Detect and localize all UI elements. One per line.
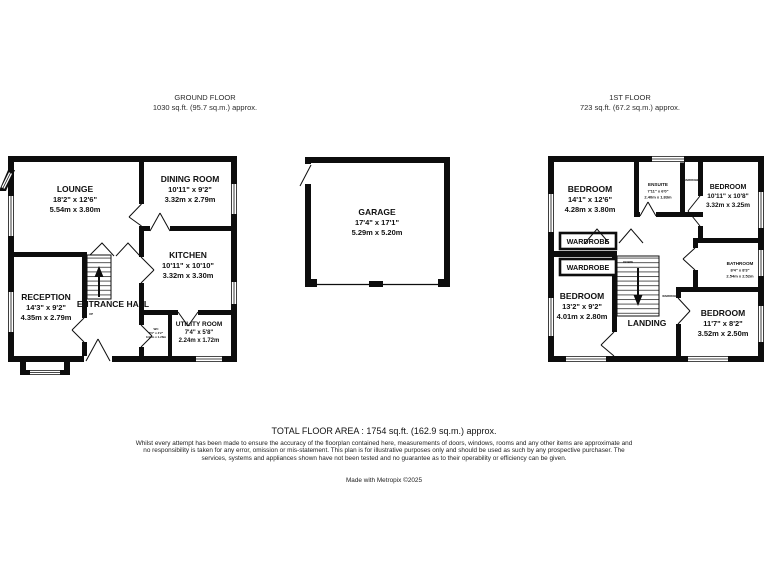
door-lounge-dining	[129, 204, 142, 226]
down-label: DOWN	[623, 260, 633, 264]
first-floor-plan: BEDROOM 14'1" x 12'6" 4.28m x 3.80m ENSU…	[548, 156, 765, 363]
room-dims-metric: 2.40m x 1.83m	[644, 195, 672, 200]
room-dims-metric: 2.24m x 1.72m	[179, 338, 220, 344]
window	[231, 184, 238, 214]
floorplan-page: GROUND FLOOR 1030 sq.ft. (95.7 sq.m.) ap…	[0, 0, 768, 576]
room-name: UTILITY ROOM	[176, 321, 222, 328]
door-ensuite	[640, 202, 656, 217]
utility-room-label: UTILITY ROOM 7'4" x 5'8" 2.24m x 1.72m	[176, 321, 222, 344]
ground-floor-plan: LOUNGE 18'2" x 12'6" 5.54m x 3.80m DININ…	[0, 156, 238, 376]
room-name: GARAGE	[358, 207, 396, 217]
room-name: BEDROOM	[710, 184, 747, 191]
room-dims-metric: 4.01m x 2.80m	[557, 312, 608, 321]
room-dims-metric: 5.29m x 5.20m	[352, 228, 403, 237]
wardrobe1-label: WARDROBE	[567, 237, 610, 246]
kitchen-label: KITCHEN 10'11" x 10'10" 3.32m x 3.30m	[162, 250, 214, 280]
window	[566, 356, 606, 363]
disclaimer-text: Whilst every attempt has been made to en…	[134, 440, 634, 462]
room-dims-metric: 3.52m x 2.50m	[698, 329, 749, 338]
door-hall-reception	[72, 318, 87, 342]
room-dims-metric: 3.32m x 3.30m	[163, 271, 214, 280]
door-hall-kitchen	[139, 257, 154, 283]
reception-label: RECEPTION 14'3" x 9'2" 4.35m x 2.79m	[21, 292, 72, 322]
bedroom3-label: BEDROOM 13'2" x 9'2" 4.01m x 2.80m	[557, 291, 608, 321]
window	[30, 370, 60, 376]
window	[548, 194, 555, 232]
wardrobe2-label: WARDROBE	[567, 263, 610, 272]
window	[231, 282, 238, 304]
room-dims-imperial: 10'11" x 10'10"	[162, 261, 214, 270]
room-dims-imperial: 14'3" x 9'2"	[26, 303, 66, 312]
window	[196, 356, 222, 363]
window	[688, 356, 728, 363]
bedroom1-label: BEDROOM 14'1" x 12'6" 4.28m x 3.80m	[565, 184, 616, 214]
bedroom2-label: BEDROOM 10'11" x 10'8" 3.32m x 3.25m	[706, 184, 750, 209]
wardrobe-top-label: WARDROBE	[683, 178, 699, 182]
window	[758, 192, 765, 228]
room-dims-metric: 4.35m x 2.79m	[21, 313, 72, 322]
door-bedroom4	[678, 298, 690, 324]
staircase-down	[617, 256, 659, 316]
room-dims-metric: 4.28m x 3.80m	[565, 205, 616, 214]
door-bathroom	[683, 248, 695, 270]
staircase-up	[87, 255, 111, 299]
total-floor-area: TOTAL FLOOR AREA : 1754 sq.ft. (162.9 sq…	[0, 426, 768, 436]
room-dims-imperial: 7'11" x 6'0"	[647, 189, 668, 194]
window	[8, 292, 15, 332]
floorplan-canvas: LOUNGE 18'2" x 12'6" 5.54m x 3.80m DININ…	[0, 0, 768, 576]
opening-lounge-hall	[89, 243, 140, 256]
up-label: UP	[89, 312, 93, 316]
room-name: BEDROOM	[701, 308, 745, 318]
window	[758, 250, 765, 276]
room-name: RECEPTION	[21, 292, 71, 302]
room-dims-metric: 3.32m x 3.25m	[706, 202, 750, 209]
room-dims-metric: 3.32m x 2.79m	[165, 195, 216, 204]
ensuite-label: ENSUITE 7'11" x 6'0" 2.40m x 1.83m	[644, 182, 672, 200]
room-dims-imperial: 17'4" x 17'1"	[355, 218, 399, 227]
room-dims-imperial: 10'11" x 10'8"	[707, 193, 748, 200]
wardrobe-side-label: WARDROBE	[662, 294, 678, 298]
room-name: BEDROOM	[560, 291, 604, 301]
window	[8, 196, 15, 236]
room-dims-imperial: 13'2" x 9'2"	[562, 302, 602, 311]
room-dims-imperial: 11'7" x 8'2"	[703, 319, 743, 328]
door-bedroom3	[601, 332, 614, 356]
room-dims-metric: 2.54m x 2.52m	[726, 274, 754, 279]
bathroom-label: BATHROOM 8'4" x 8'3" 2.54m x 2.52m	[726, 261, 754, 279]
garage-label: GARAGE 17'4" x 17'1" 5.29m x 5.20m	[352, 207, 403, 237]
window	[652, 156, 684, 163]
room-dims-imperial: 10'11" x 9'2"	[168, 185, 212, 194]
room-name: DINING ROOM	[161, 174, 220, 184]
wc-label: WC 3'0" x 4'2" 0.91m x 1.28m	[146, 327, 167, 339]
window	[758, 306, 765, 342]
room-dims-imperial: 18'2" x 12'6"	[53, 195, 97, 204]
room-name: ENTRANCE HALL	[77, 299, 149, 309]
dining-room-label: DINING ROOM 10'11" x 9'2" 3.32m x 2.79m	[161, 174, 220, 204]
room-dims-imperial: 7'4" x 5'8"	[185, 330, 214, 336]
room-name: LOUNGE	[57, 184, 94, 194]
door-bedroom2	[688, 196, 700, 226]
garage-plan: GARAGE 17'4" x 17'1" 5.29m x 5.20m	[300, 157, 450, 287]
door-dining-kitchen	[150, 213, 170, 231]
lounge-label: LOUNGE 18'2" x 12'6" 5.54m x 3.80m	[50, 184, 101, 214]
credit-line: Made with Metropix ©2025	[134, 477, 634, 484]
room-dims-imperial: 8'4" x 8'3"	[730, 268, 749, 273]
room-dims-imperial: 14'1" x 12'6"	[568, 195, 612, 204]
entrance-hall-label: ENTRANCE HALL UP	[77, 299, 149, 316]
bedroom4-label: BEDROOM 11'7" x 8'2" 3.52m x 2.50m	[698, 308, 749, 338]
porch-bay	[20, 362, 70, 376]
room-name: KITCHEN	[169, 250, 207, 260]
room-dims-metric: 5.54m x 3.80m	[50, 205, 101, 214]
landing-label: LANDING	[628, 318, 667, 328]
room-name: BEDROOM	[568, 184, 612, 194]
front-door	[84, 339, 112, 362]
room-name: BATHROOM	[727, 261, 754, 266]
garage-side-door	[300, 165, 311, 186]
room-dims-metric: 0.91m x 1.28m	[146, 335, 167, 339]
room-name: ENSUITE	[648, 182, 668, 187]
window	[548, 298, 555, 336]
